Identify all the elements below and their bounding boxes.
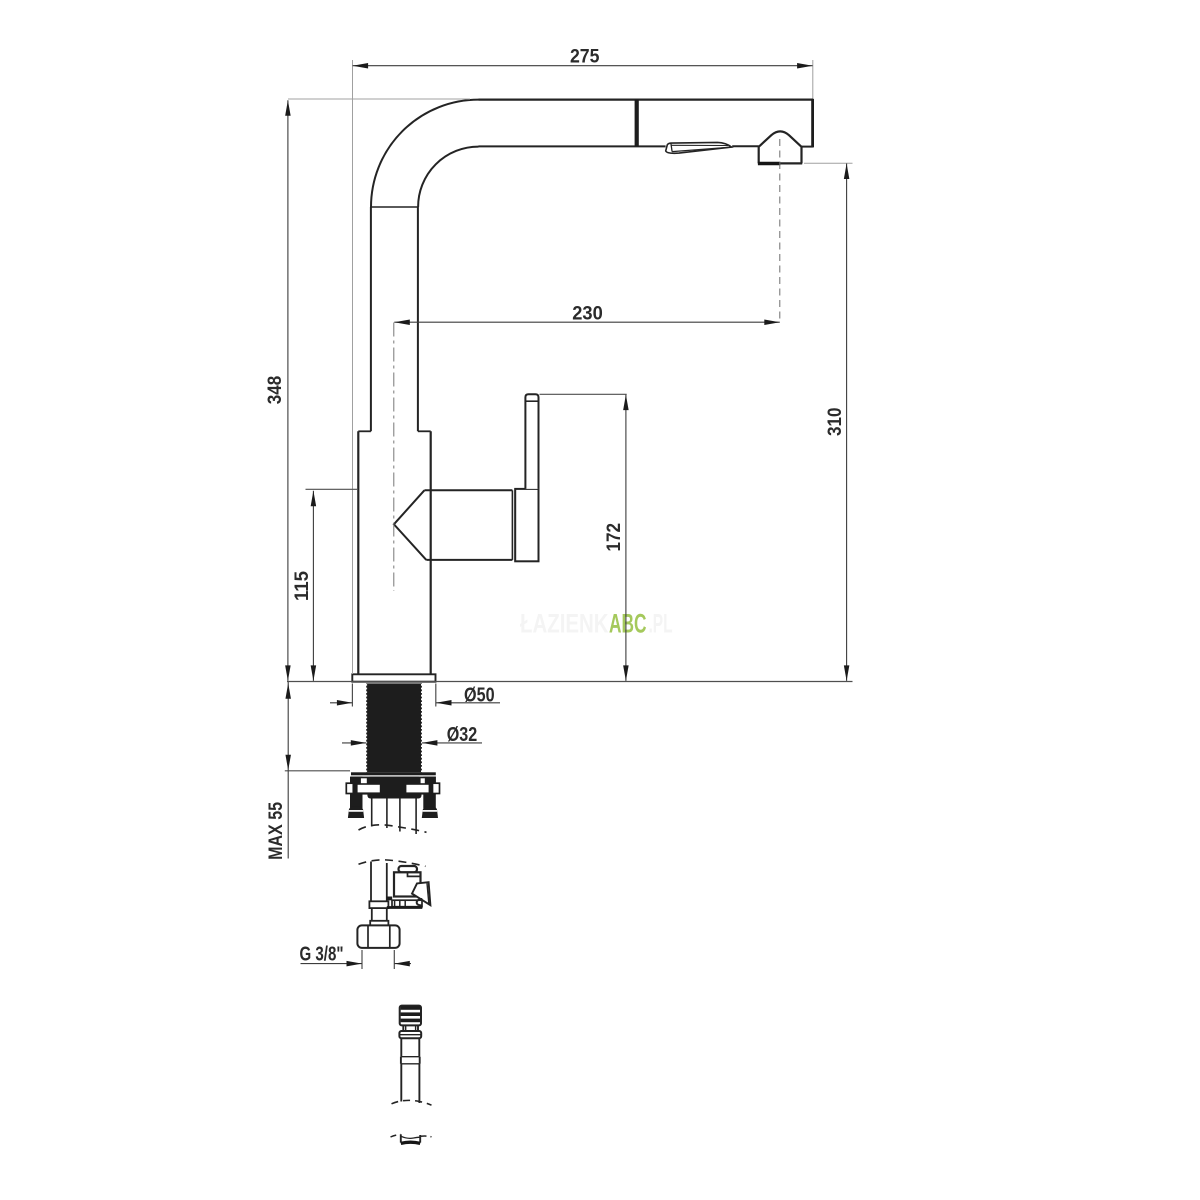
svg-text:Ø50: Ø50 xyxy=(464,683,495,706)
svg-text:275: 275 xyxy=(570,47,600,68)
svg-text:348: 348 xyxy=(265,376,286,405)
svg-text:ŁAZIENK: ŁAZIENK xyxy=(520,609,609,639)
svg-text:310: 310 xyxy=(825,407,846,436)
svg-text:115: 115 xyxy=(292,571,313,601)
svg-text:230: 230 xyxy=(572,304,603,325)
svg-text:172: 172 xyxy=(604,523,625,552)
svg-text:Ø32: Ø32 xyxy=(447,723,478,746)
svg-text:MAX 55: MAX 55 xyxy=(266,802,287,860)
svg-text:G 3/8": G 3/8" xyxy=(300,943,344,965)
svg-text:ABC: ABC xyxy=(609,609,647,639)
svg-text:.PL: .PL xyxy=(649,609,673,639)
